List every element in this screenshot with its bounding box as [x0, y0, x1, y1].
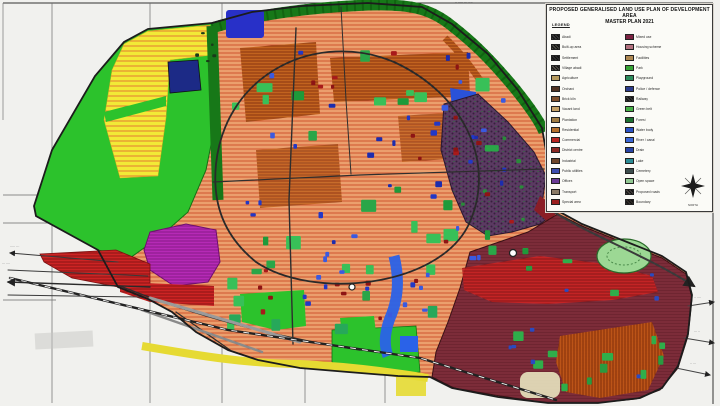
legend-item: Police / defence: [625, 83, 709, 93]
legend-label: District centre: [562, 149, 583, 152]
legend-swatch: [551, 147, 560, 153]
map-dot: [394, 187, 401, 193]
map-dot: [298, 51, 303, 55]
compass-label: NORTH: [679, 203, 706, 206]
map-dot: [428, 306, 438, 318]
legend-swatch: [625, 147, 634, 153]
map-dot: [378, 316, 382, 320]
legend-swatch: [625, 178, 634, 184]
legend-swatch: [551, 55, 560, 61]
map-dot: [453, 148, 458, 152]
legend-label: Police / defence: [636, 87, 660, 90]
legend-label: Agriculture: [562, 77, 578, 80]
map-dot: [485, 192, 490, 196]
legend-item: Village abadi: [551, 63, 623, 73]
map-dot: [318, 85, 323, 89]
legend-swatch: [625, 137, 634, 143]
water-patch: [400, 336, 418, 352]
map-dot: [201, 32, 205, 34]
legend-label: Public utilities: [562, 169, 583, 172]
map-dot: [501, 98, 506, 103]
map-dot: [268, 296, 273, 300]
map-dot: [485, 230, 490, 240]
map-dot: [388, 184, 392, 187]
legend-label: Drain: [636, 149, 644, 152]
map-dot: [323, 256, 327, 262]
map-dot: [469, 256, 476, 260]
legend-swatch: [551, 34, 560, 40]
map-dot: [443, 200, 452, 210]
map-dot: [332, 240, 336, 244]
map-dot: [388, 313, 392, 318]
legend-swatch: [625, 96, 634, 102]
map-dot: [652, 336, 657, 344]
map-dot: [641, 370, 647, 379]
legend-item: Plantation: [551, 114, 623, 124]
legend-item: Abadi: [551, 32, 623, 42]
legend-item: Vacant land: [551, 104, 623, 114]
map-dot: [261, 309, 266, 314]
legend-swatch: [625, 55, 634, 61]
legend-label: Open space: [636, 180, 654, 183]
legend-item: Special area: [551, 197, 623, 207]
map-dot: [374, 97, 386, 105]
map-dot: [325, 252, 329, 257]
map-dot: [446, 55, 450, 61]
map-dot: [658, 356, 663, 365]
map-dot: [403, 302, 407, 307]
legend-title-line2: MASTER PLAN 2021: [547, 19, 712, 25]
legend-swatch: [551, 65, 560, 71]
junction-circle-2: [349, 284, 355, 290]
legend-item: Forest: [625, 114, 709, 124]
map-dot: [500, 181, 503, 186]
legend-label: Settlement: [562, 56, 578, 59]
legend-swatch: [551, 189, 560, 195]
map-dot: [258, 200, 261, 205]
map-dot: [407, 116, 410, 121]
legend-swatch: [625, 127, 634, 133]
map-dot: [422, 309, 428, 312]
map-dot: [391, 51, 397, 56]
map-dot: [565, 289, 569, 292]
region-builtup-1: [240, 42, 320, 122]
map-dot: [561, 384, 567, 392]
legend-swatch: [625, 189, 634, 195]
legend-item: Brick kiln: [551, 94, 623, 104]
legend-item: Public utilities: [551, 166, 623, 176]
map-dot: [331, 85, 334, 89]
legend-item: Playground: [625, 73, 709, 83]
legend-swatch: [551, 44, 560, 50]
legend-item: Lake: [625, 156, 709, 166]
legend-label: Cemetery: [636, 169, 651, 172]
map-dot: [444, 229, 459, 241]
legend-swatch: [551, 168, 560, 174]
legend-label: Plantation: [562, 118, 577, 121]
edge-label-top: ·· ····· ··· ····: [455, 1, 473, 4]
legend-item: Green belt: [625, 104, 709, 114]
legend-label: Proposed roads: [636, 190, 660, 193]
map-dot: [263, 237, 268, 246]
legend-item: Facilities: [625, 53, 709, 63]
legend-item: Housing scheme: [625, 42, 709, 52]
legend-swatch: [625, 65, 634, 71]
legend-label: Mixed use: [636, 35, 651, 38]
legend-item: District centre: [551, 145, 623, 155]
map-dot: [531, 360, 535, 365]
map-dot: [303, 295, 307, 300]
map-dot: [456, 65, 459, 70]
map-dot: [503, 137, 507, 141]
map-dot: [351, 234, 357, 238]
map-dot: [602, 353, 613, 361]
map-dot: [481, 129, 487, 133]
map-dot: [332, 76, 338, 79]
map-dot: [311, 80, 315, 85]
map-dot: [305, 301, 311, 306]
map-dot: [341, 292, 347, 296]
map-dot: [266, 261, 275, 269]
region-navy-block: [168, 60, 201, 93]
map-dot: [426, 234, 440, 243]
map-dot: [434, 122, 440, 126]
map-dot: [650, 273, 654, 276]
map-dot: [316, 275, 321, 280]
legend-item: Mixed use: [625, 32, 709, 42]
map-dot: [392, 140, 395, 146]
legend-label: Playground: [636, 77, 653, 80]
legend-label: River / canal: [636, 138, 655, 141]
legend-label: Residential: [562, 128, 579, 131]
legend-item: Offices: [551, 176, 623, 186]
legend-swatch: [625, 158, 634, 164]
legend-label: Orchard: [562, 87, 574, 90]
legend-swatch: [625, 106, 634, 112]
legend-swatch: [625, 44, 634, 50]
region-openspace-oval: [597, 239, 651, 273]
map-dot: [444, 240, 449, 244]
legend-item: Built-up area: [551, 42, 623, 52]
legend-heading: LEGEND: [552, 22, 570, 27]
map-dot: [521, 218, 525, 221]
map-dot: [467, 53, 471, 59]
map-dot: [329, 104, 336, 108]
map-dot: [319, 212, 324, 218]
map-dot: [454, 116, 458, 120]
edge-label-right-2: ··· ··: [694, 330, 700, 333]
legend-panel: PROPOSED GENERALISED LAND USE PLAN OF DE…: [546, 4, 713, 212]
map-dot: [476, 141, 482, 145]
legend-label: Transport: [562, 190, 576, 193]
legend-label: Water body: [636, 128, 653, 131]
legend-label: Lake: [636, 159, 643, 162]
map-dot: [270, 133, 275, 139]
road-exit-2: [684, 338, 714, 343]
map-dot: [365, 287, 369, 291]
junction-circle-1: [510, 250, 517, 257]
map-dot: [477, 255, 481, 260]
legend-item: Park: [625, 63, 709, 73]
legend-title-line1: PROPOSED GENERALISED LAND USE PLAN OF DE…: [547, 5, 712, 19]
legend-swatch: [625, 34, 634, 40]
legend-swatch: [551, 106, 560, 112]
map-dot: [271, 319, 280, 331]
map-dot: [522, 248, 528, 254]
edge-label-right-3: ·· ···: [690, 362, 696, 365]
gray-smudge: [35, 330, 94, 349]
map-dot: [488, 246, 496, 255]
edge-label-left-1: ····· ···: [10, 245, 19, 248]
legend-label: Housing scheme: [636, 46, 661, 49]
map-dot: [637, 374, 641, 378]
legend-column-left: AbadiBuilt-up areaSettlementVillage abad…: [551, 32, 623, 207]
legend-swatch: [551, 158, 560, 164]
map-dot: [252, 269, 262, 275]
map-dot: [410, 282, 415, 287]
map-dot: [509, 345, 512, 349]
road-exit-3: [676, 368, 710, 375]
map-dot: [339, 270, 344, 274]
edge-label-right-1: ·· ····: [694, 296, 701, 299]
map-dot: [367, 153, 374, 158]
map-dot: [511, 345, 516, 348]
legend-label: Forest: [636, 118, 646, 121]
map-dot: [654, 296, 659, 301]
map-dot: [442, 105, 449, 111]
legend-label: Facilities: [636, 56, 649, 59]
map-dot: [362, 291, 370, 301]
map-dot: [516, 159, 521, 163]
map-dot: [476, 78, 490, 92]
legend-swatch: [625, 86, 634, 92]
map-dot: [361, 200, 376, 212]
legend-label: Offices: [562, 180, 573, 183]
legend-item: Railway: [625, 94, 709, 104]
map-dot: [530, 328, 535, 332]
map-dot: [456, 226, 459, 231]
legend-item: Commercial: [551, 135, 623, 145]
map-dot: [324, 284, 328, 289]
map-dot: [246, 201, 250, 205]
legend-swatch: [551, 178, 560, 184]
map-dot: [308, 131, 317, 141]
map-dot: [419, 286, 423, 290]
map-dot: [212, 54, 216, 57]
map-dot: [258, 286, 262, 290]
legend-label: Vacant land: [562, 108, 580, 111]
map-dot: [234, 296, 245, 307]
legend-item: Orchard: [551, 83, 623, 93]
map-dot: [659, 343, 665, 350]
map-dot: [406, 90, 414, 96]
map-dot: [411, 221, 417, 233]
map-dot: [376, 137, 382, 141]
legend-swatch: [551, 75, 560, 81]
map-dot: [548, 351, 558, 358]
map-dot: [293, 144, 297, 149]
map-dot: [398, 98, 409, 105]
map-dot: [587, 377, 592, 384]
map-dot: [513, 331, 523, 341]
legend-item: Agriculture: [551, 73, 623, 83]
legend-swatch: [625, 199, 634, 205]
map-dot: [468, 160, 472, 164]
legend-swatch: [551, 137, 560, 143]
map-dot: [411, 134, 415, 138]
legend-swatch: [551, 96, 560, 102]
legend-label: Abadi: [562, 35, 571, 38]
legend-item: Transport: [551, 186, 623, 196]
legend-label: Brick kiln: [562, 97, 576, 100]
legend-label: Village abadi: [562, 66, 581, 69]
map-dot: [509, 220, 514, 224]
legend-label: Industrial: [562, 159, 576, 162]
legend-label: Railway: [636, 97, 648, 100]
map-dot: [269, 73, 274, 78]
legend-label: Green belt: [636, 108, 652, 111]
legend-swatch: [551, 127, 560, 133]
legend-swatch: [625, 168, 634, 174]
legend-swatch: [551, 86, 560, 92]
legend-item: Residential: [551, 125, 623, 135]
legend-item: Water body: [625, 125, 709, 135]
map-dot: [366, 265, 374, 274]
map-dot: [431, 194, 437, 199]
map-dot: [526, 266, 532, 271]
map-dot: [211, 44, 214, 47]
map-dot: [600, 364, 608, 373]
map-dot: [263, 95, 269, 105]
map-dot: [414, 279, 418, 283]
map-dot: [426, 273, 430, 278]
edge-label-left-2: ··· ····: [2, 262, 10, 265]
map-dot: [461, 203, 465, 206]
map-dot: [195, 53, 199, 57]
legend-swatch: [625, 117, 634, 123]
map-dot: [520, 185, 524, 188]
scanned-master-plan-map: PROPOSED GENERALISED LAND USE PLAN OF DE…: [0, 0, 720, 406]
legend-item: Industrial: [551, 156, 623, 166]
map-dot: [335, 324, 348, 334]
legend-label: Special area: [562, 200, 581, 203]
legend-item: Settlement: [551, 53, 623, 63]
map-dot: [414, 92, 427, 102]
map-dot: [563, 259, 573, 263]
map-dot: [435, 181, 442, 187]
legend-item: River / canal: [625, 135, 709, 145]
legend-swatch: [625, 75, 634, 81]
map-dot: [227, 278, 237, 290]
map-dot: [418, 157, 422, 161]
map-label-mid: ··· ··: [606, 290, 612, 293]
legend-label: Commercial: [562, 138, 580, 141]
map-dot: [206, 60, 210, 62]
legend-label: Boundary: [636, 200, 651, 203]
map-dot: [485, 145, 499, 151]
road-west-4: [8, 295, 140, 297]
map-dot: [257, 83, 273, 92]
map-dot: [431, 130, 438, 135]
legend-swatch: [551, 199, 560, 205]
legend-item: Drain: [625, 145, 709, 155]
map-dot: [286, 236, 301, 249]
map-dot: [250, 213, 255, 216]
compass-rose-icon: [680, 173, 706, 199]
legend-swatch: [551, 117, 560, 123]
legend-label: Built-up area: [562, 46, 581, 49]
legend-label: Park: [636, 66, 643, 69]
map-dot: [459, 80, 463, 84]
